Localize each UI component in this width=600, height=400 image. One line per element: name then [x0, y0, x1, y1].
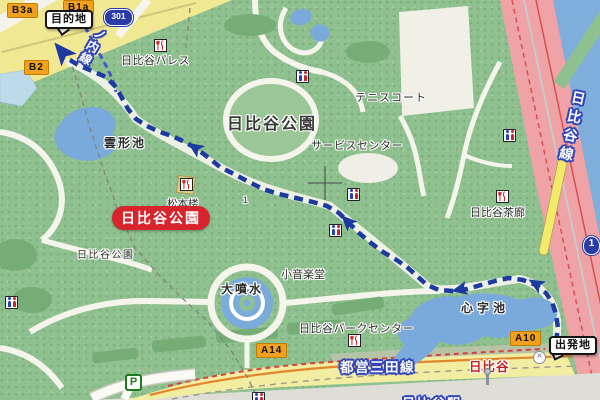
block-number-label: 1 — [243, 195, 248, 205]
hibiya-station-clipped-label: 日比谷駅 — [402, 393, 462, 400]
shinji-pond-label: 心字池 — [461, 299, 509, 316]
park-name-small-label: 日比谷公園 — [77, 246, 135, 261]
pond-small-2 — [309, 22, 332, 43]
park-path — [400, 116, 424, 196]
park-path — [0, 132, 62, 240]
restaurant-icon[interactable] — [154, 39, 167, 52]
restaurant-icon[interactable] — [180, 178, 193, 191]
restroom-icon[interactable] — [5, 296, 18, 309]
service-center-label: サービスセンター — [311, 137, 403, 153]
restroom-icon[interactable] — [252, 392, 265, 400]
tennis-court-label: テニスコート — [355, 89, 427, 105]
fountain-jet — [244, 300, 251, 307]
toei-mita-line-label: 都営三田線 — [340, 356, 415, 376]
restroom-icon[interactable] — [329, 224, 342, 237]
restaurant-icon[interactable] — [348, 334, 361, 347]
park-path — [0, 348, 62, 388]
exit-badge-a14[interactable]: A14 — [256, 343, 287, 358]
great-fountain-label: 大噴水 — [221, 280, 263, 297]
restroom-icon[interactable] — [503, 129, 516, 142]
hibiya-saro-label: 日比谷茶廊 — [470, 204, 525, 220]
park-path — [464, 155, 512, 166]
route-301-shield: 301 — [104, 9, 133, 26]
exit-badge-b3a[interactable]: B3a — [7, 3, 38, 18]
route-map[interactable]: B3a B1a B2 A14 A10 目的地 出発地 301 1 ノ内線 日比谷… — [0, 0, 600, 400]
park-path — [30, 301, 210, 332]
departure-callout[interactable]: 出発地 — [549, 336, 597, 355]
hibiya-palace-label: 日比谷パレス — [121, 52, 190, 68]
restaurant-icon[interactable] — [496, 190, 509, 203]
exit-badge-b2[interactable]: B2 — [24, 60, 49, 75]
park-title-label: 日比谷公園 — [227, 110, 317, 134]
park-poi-badge[interactable]: 日比谷公園 — [112, 206, 210, 230]
exit-badge-a10[interactable]: A10 — [510, 331, 541, 346]
station-exit-x-icon[interactable] — [533, 351, 546, 364]
kumogata-pond-label: 雲形池 — [104, 134, 146, 151]
map-crosshair — [308, 166, 342, 200]
restroom-icon[interactable] — [347, 188, 360, 201]
route-1-shield: 1 — [583, 236, 600, 255]
plaza — [338, 153, 398, 183]
parking-icon[interactable]: P — [125, 374, 142, 391]
streetlight-icon — [486, 374, 489, 385]
destination-callout[interactable]: 目的地 — [45, 10, 93, 29]
restroom-icon[interactable] — [296, 70, 309, 83]
small-music-hall-label: 小音楽堂 — [281, 266, 325, 282]
pond-small-1 — [288, 6, 313, 27]
